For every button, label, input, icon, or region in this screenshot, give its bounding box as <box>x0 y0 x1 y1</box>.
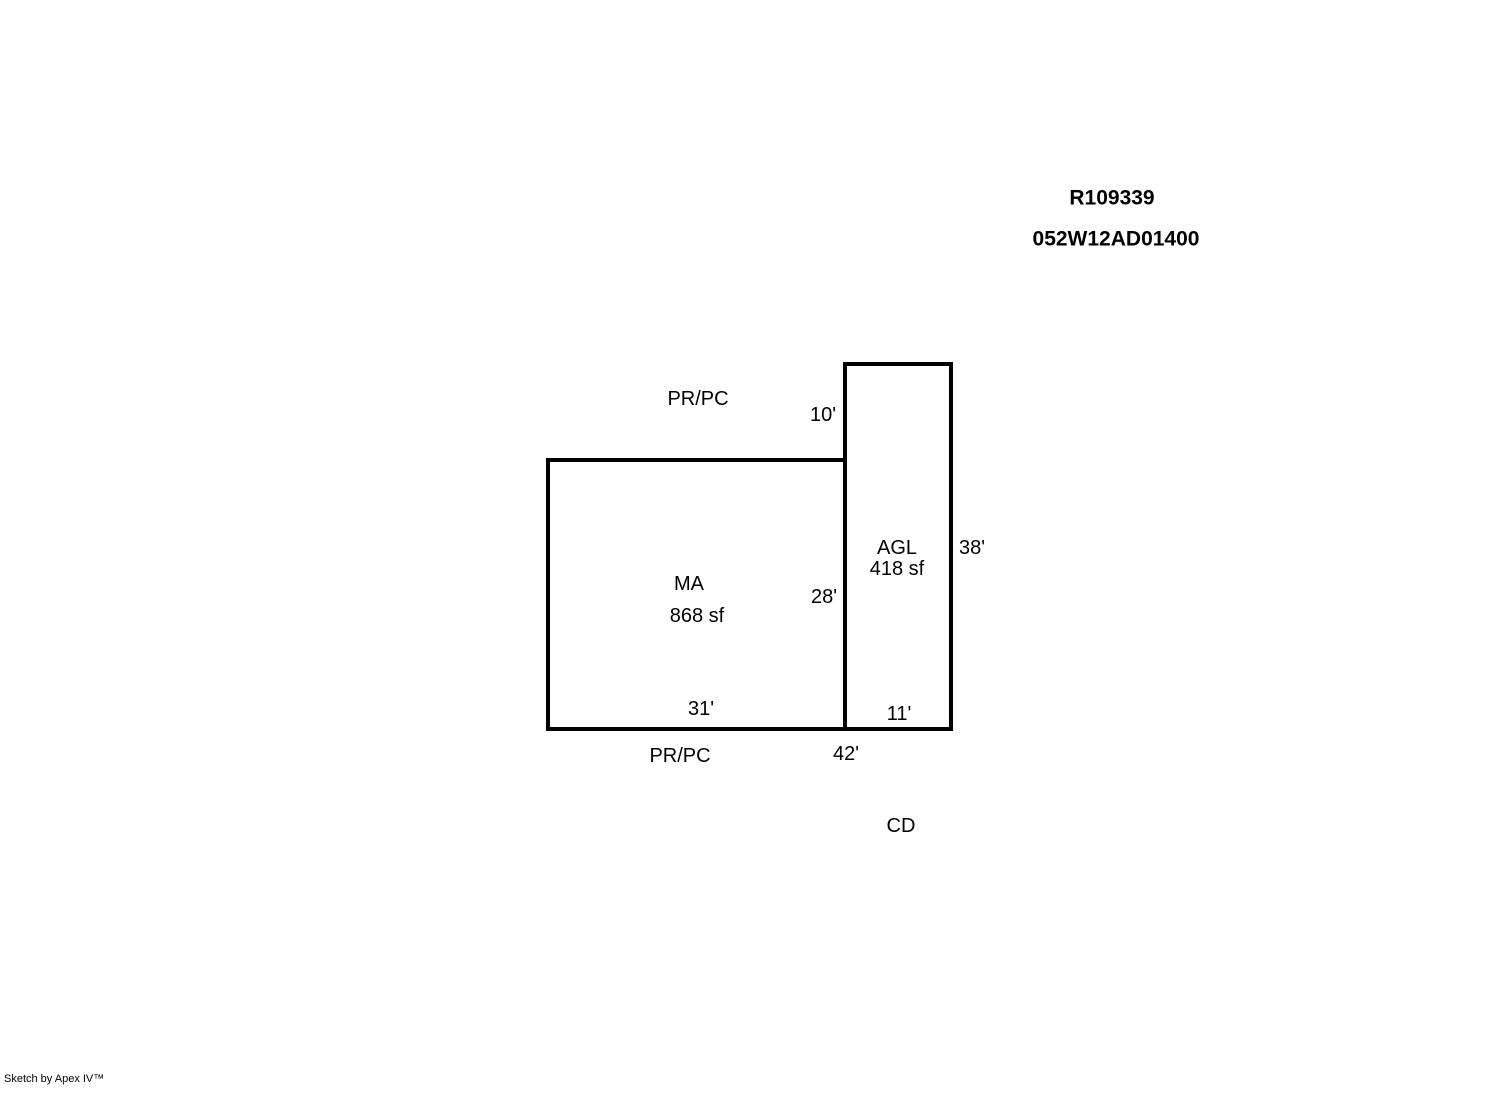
parcel-id-label: 052W12AD01400 <box>1033 229 1200 250</box>
pr-pc-top-label: PR/PC <box>667 389 728 409</box>
agl-bottom-dimension: 11' <box>887 704 912 724</box>
agl-top-dimension: 10' <box>810 405 836 425</box>
overall-bottom-dimension: 42' <box>833 744 859 764</box>
record-id-label: R109339 <box>1069 188 1154 209</box>
ma-code-label: MA <box>674 574 704 594</box>
pr-pc-bottom-label: PR/PC <box>649 746 710 766</box>
ma-area-label: 868 sf <box>670 606 724 626</box>
agl-area-label: 418 sf <box>870 559 924 579</box>
ma-bottom-dimension: 31' <box>688 699 714 719</box>
sketch-page: R109339 052W12AD01400 PR/PC 10' AGL 418 … <box>0 0 1492 1094</box>
apex-credit-label: Sketch by Apex IV™ <box>4 1074 104 1085</box>
cd-label: CD <box>887 816 916 836</box>
agl-code-label: AGL <box>877 538 917 558</box>
agl-right-dimension: 38' <box>959 538 985 558</box>
ma-right-dimension: 28' <box>811 587 837 607</box>
